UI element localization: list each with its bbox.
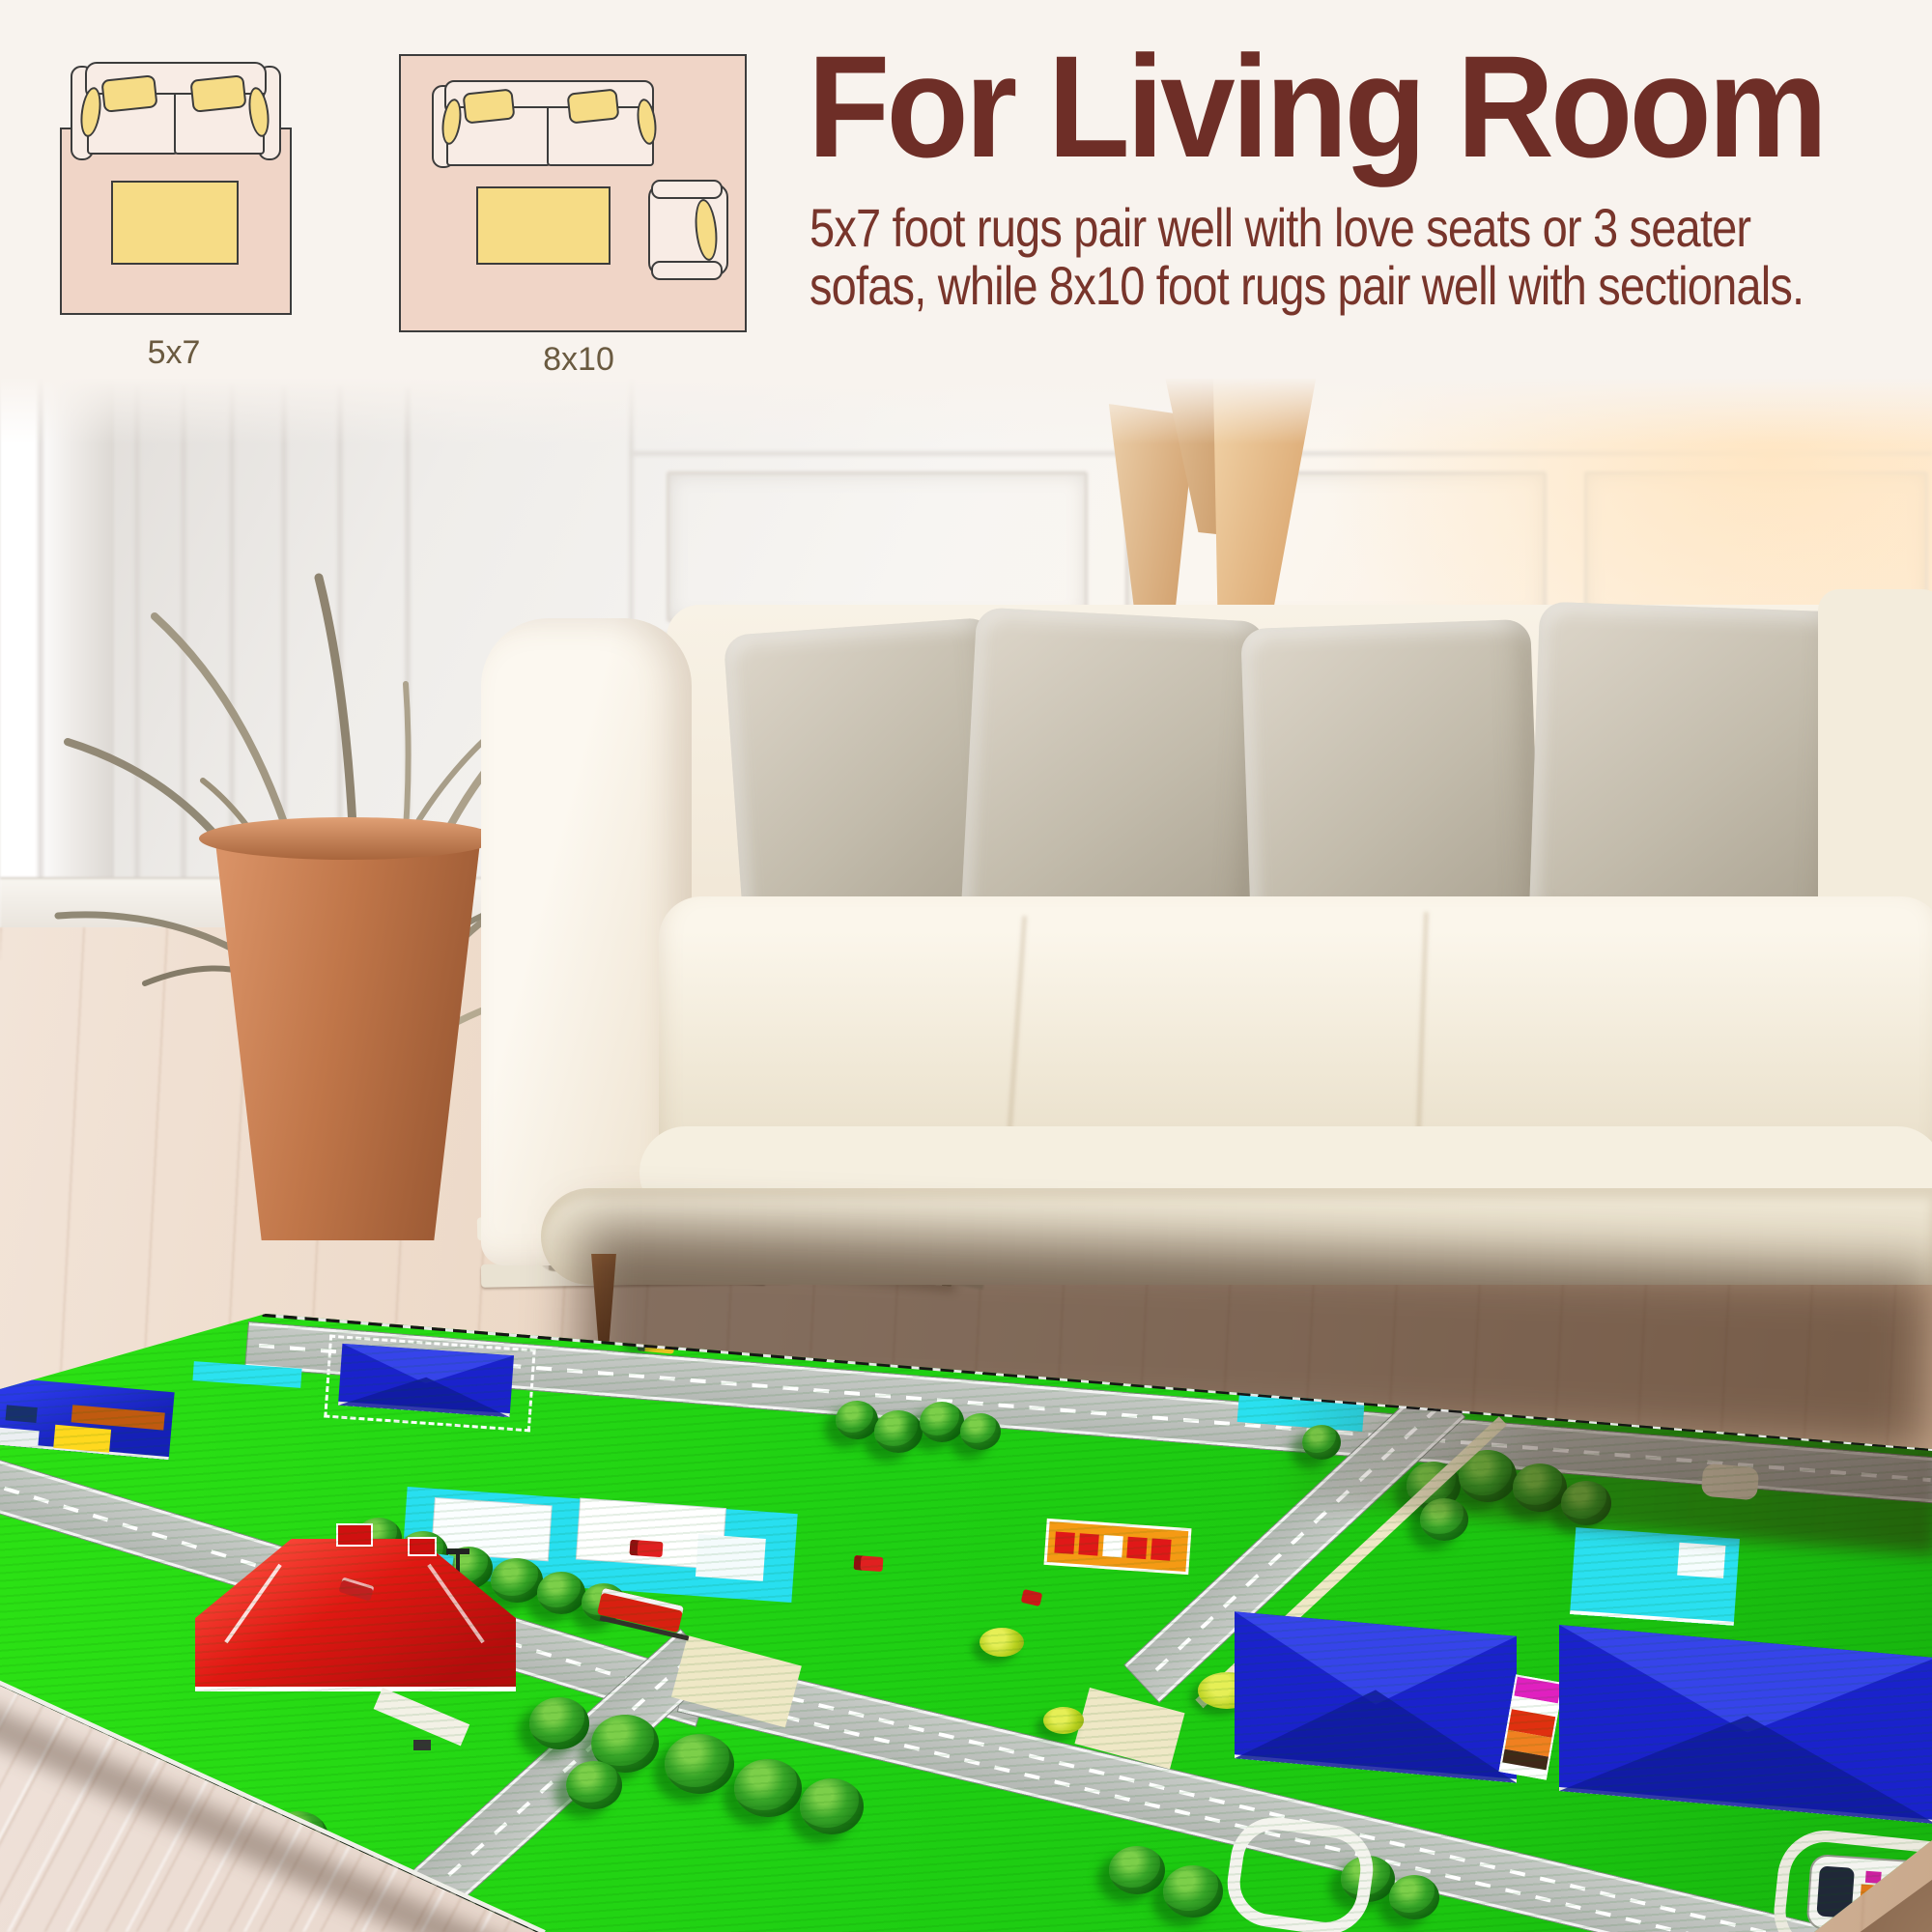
- page-subtitle: 5x7 foot rugs pair well with love seats …: [810, 199, 1932, 315]
- sofa-pillow-icon: [566, 88, 619, 124]
- coffee-table-icon: [111, 181, 239, 265]
- diagram-label: 5x7: [148, 334, 201, 372]
- coffee-table-icon: [476, 186, 611, 265]
- subtitle-line-1: 5x7 foot rugs pair well with love seats …: [810, 199, 1804, 257]
- sofa-pillow-icon: [189, 74, 246, 113]
- diagram-label: 8x10: [543, 341, 614, 379]
- armchair-arm-icon: [651, 180, 723, 199]
- plant-pot-rim: [199, 817, 497, 860]
- page-title: For Living Room: [808, 23, 1824, 190]
- product-infographic: 5x7 8x10 For Living Room 5x7 foot rugs p…: [0, 0, 1932, 1932]
- sofa-pillow-icon: [462, 88, 515, 124]
- subtitle-line-2: sofas, while 8x10 foot rugs pair well wi…: [810, 257, 1804, 315]
- size-diagram-8x10: 8x10: [367, 0, 773, 386]
- sofa-back-cushion: [1818, 589, 1932, 949]
- sofa-pillow-icon: [100, 74, 157, 113]
- size-diagram-5x7: 5x7: [0, 0, 406, 386]
- header-fade: [0, 377, 1932, 444]
- armchair-arm-icon: [651, 261, 723, 280]
